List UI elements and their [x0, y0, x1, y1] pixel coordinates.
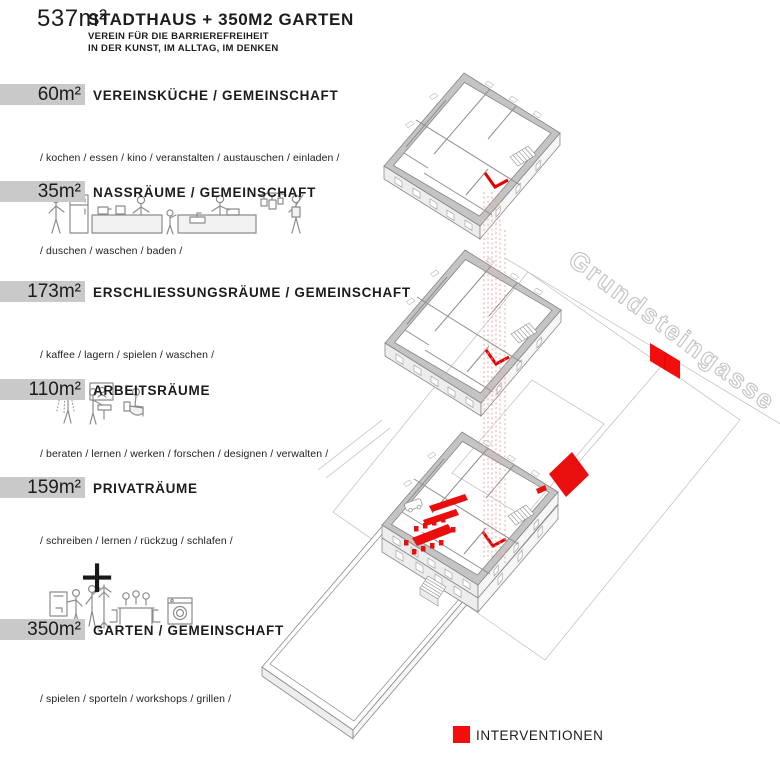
activities-caption: / schreiben / lernen / rückzug / schlafe…	[40, 535, 233, 547]
activities-caption: / duschen / waschen / baden /	[40, 245, 182, 257]
activities-caption: / kochen / essen / kino / veranstalten /…	[40, 152, 340, 164]
area-badge: 35m²	[0, 181, 85, 202]
section-title: NASSRÄUME / GEMEINSCHAFT	[93, 185, 316, 200]
legend-label: INTERVENTIONEN	[476, 728, 603, 743]
section-title: GARTEN / GEMEINSCHAFT	[93, 623, 284, 638]
section-title: ERSCHLIESSUNGSRÄUME / GEMEINSCHAFT	[93, 285, 411, 300]
activities-caption: / spielen / sporteln / workshops / grill…	[40, 693, 231, 705]
section-arbeitsraeume: 110m² ARBEITSRÄUME / beraten / lernen / …	[0, 379, 420, 479]
section-garten: 350m² GARTEN / GEMEINSCHAFT / spielen / …	[0, 619, 420, 719]
subtitle: VEREIN FÜR DIE BARRIEREFREIHEIT IN DER K…	[88, 31, 279, 55]
subtitle-line-1: VEREIN FÜR DIE BARRIEREFREIHEIT	[88, 31, 279, 43]
subtitle-line-2: IN DER KUNST, IM ALLTAG, IM DENKEN	[88, 43, 279, 55]
area-badge: 173m²	[0, 281, 85, 302]
section-privatraeume: 159m² PRIVATRÄUME / schreiben / lernen /…	[0, 477, 420, 577]
area-badge: 110m²	[0, 379, 85, 400]
area-badge: 350m²	[0, 619, 85, 640]
area-badge: 60m²	[0, 84, 85, 105]
section-erschliessung: 173m² ERSCHLIESSUNGSRÄUME / GEMEINSCHAFT…	[0, 281, 420, 381]
activities-caption: / kaffee / lagern / spielen / waschen /	[40, 349, 214, 361]
legend-red-swatch	[453, 726, 470, 743]
section-title: ARBEITSRÄUME	[93, 383, 210, 398]
section-title: VEREINSKÜCHE / GEMEINSCHAFT	[93, 88, 338, 103]
section-title: PRIVATRÄUME	[93, 481, 198, 496]
plus-sign: +	[72, 555, 122, 605]
infographic-canvas: 537m² STADTHAUS + 350M2 GARTEN VEREIN FÜ…	[0, 0, 780, 766]
activities-caption: / beraten / lernen / werken / forschen /…	[40, 448, 328, 460]
area-badge: 159m²	[0, 477, 85, 498]
page-title: STADTHAUS + 350M2 GARTEN	[88, 10, 354, 30]
section-vereinskueche: 60m² VEREINSKÜCHE / GEMEINSCHAFT	[0, 84, 420, 184]
section-nassraeume: 35m² NASSRÄUME / GEMEINSCHAFT / duschen …	[0, 181, 420, 281]
